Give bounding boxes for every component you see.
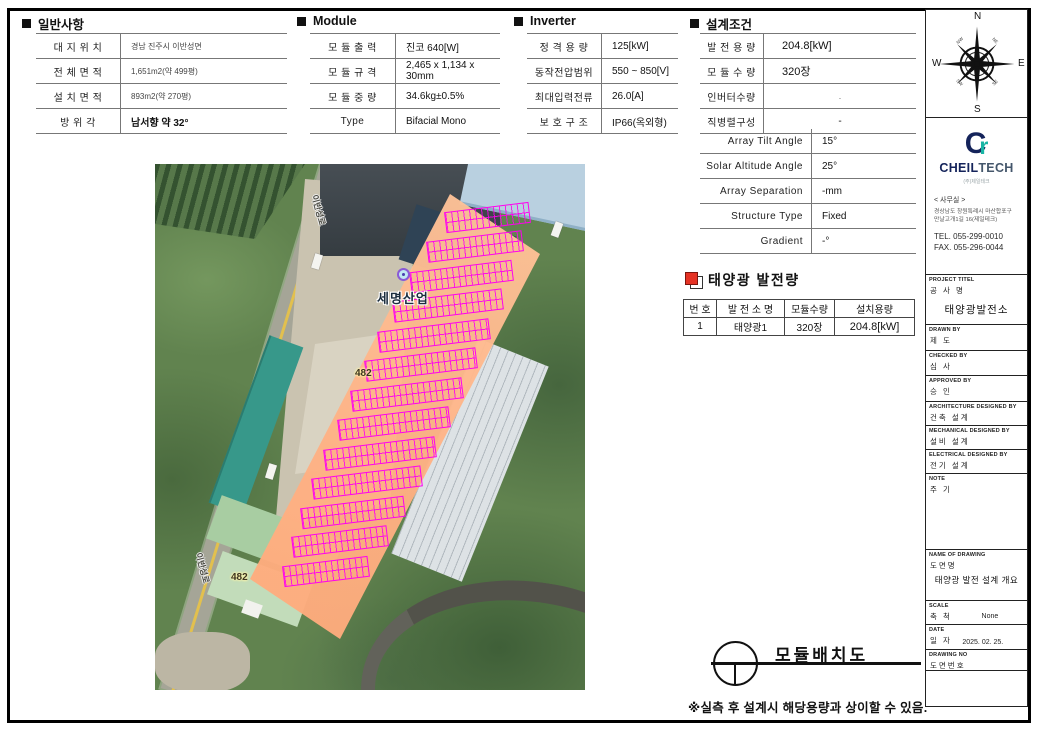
office-address: 경상남도 창원특례시 마산합포구 만날고개1길 16(제일테크) [934, 208, 1027, 224]
project-title-box: PROJECT TITEL 공 사 명 태양광발전소 [925, 274, 1028, 325]
design-section-header: 설계조건 [690, 14, 752, 33]
lot-number-label: 482 [231, 572, 248, 583]
row-value: Bifacial Mono [395, 109, 500, 133]
checked-by-box: CHECKED BY 심 사 [925, 350, 1028, 376]
row-value: 경남 진주시 이반성면 [120, 34, 287, 58]
table-row: 인버터수량 . [700, 84, 916, 109]
block-label-ko: 공 사 명 [930, 285, 965, 296]
block-label-en: CHECKED BY [929, 353, 967, 359]
general-section-header: 일반사항 [22, 14, 84, 33]
poi-label: 세명산업 [377, 288, 429, 307]
col-header: 설치용량 [834, 300, 914, 317]
scale-value: None [982, 613, 999, 620]
row-label: 인버터수량 [700, 84, 763, 108]
office-heading: < 사무실 > [934, 195, 1027, 205]
company-box: C r CHEILTECH (주)제일테크 < 사무실 > 경상남도 창원특례시… [925, 117, 1028, 275]
date-value: 2025. 02. 25. [962, 639, 1003, 646]
row-label: 전 체 면 적 [36, 59, 120, 83]
inverter-title: Inverter [530, 14, 576, 28]
block-label-ko: 건축 설계 [930, 412, 970, 423]
map-poi-marker-icon [397, 268, 410, 281]
row-label: 최대입력전류 [527, 84, 601, 108]
row-label: 모 듈 수 량 [700, 59, 763, 83]
compass-box: N S W E NE NW SE SW [925, 9, 1028, 118]
office-contact: TEL. 055-299-0010 FAX. 055-296-0044 [934, 231, 1027, 253]
table-row: 대 지 위 치 경남 진주시 이반성면 [36, 34, 287, 59]
block-label-en: DRAWN BY [929, 327, 961, 333]
note-box: NOTE 주 기 [925, 473, 1028, 550]
bullet-square-icon [514, 17, 523, 26]
row-value: -° [811, 229, 916, 253]
table-row: 모 듈 출 력 진코 640[W] [310, 34, 500, 59]
row-value: 2,465 x 1,134 x 30mm [395, 59, 500, 83]
approved-by-box: APPROVED BY 승 인 [925, 375, 1028, 402]
compass-e: E [1018, 58, 1025, 69]
table-row: 동작전압범위 550 ~ 850[V] [527, 59, 678, 84]
row-value: 1,651m2(약 499평) [120, 59, 287, 83]
lot-number-label: 482 [355, 368, 372, 379]
company-name: CHEILTECH [926, 159, 1027, 177]
inverter-table: 정 격 용 량 125[kW] 동작전압범위 550 ~ 850[V] 최대입력… [527, 33, 678, 134]
row-value: . [763, 84, 916, 108]
block-label-en: ELECTRICAL DESIGNED BY [929, 452, 1008, 458]
module-table: 모 듈 출 력 진코 640[W] 모 듈 규 격 2,465 x 1,134 … [310, 33, 500, 134]
design-table-ko: 발 전 용 량 204.8[kW] 모 듈 수 량 320장 인버터수량 . 직… [700, 33, 916, 134]
block-label-ko: 심 사 [930, 361, 952, 372]
block-label-ko: 도면명 [930, 560, 957, 571]
module-section-header: Module [297, 14, 357, 28]
table-cell: 204.8[kW] [834, 317, 914, 335]
inverter-section-header: Inverter [514, 14, 576, 28]
drawing-name-value: 태양광 발전 설계 개요 [926, 574, 1027, 586]
row-label: Solar Altitude Angle [700, 154, 811, 178]
compass-w: W [932, 58, 941, 69]
block-label-en: SCALE [929, 603, 949, 609]
design-title: 설계조건 [706, 14, 752, 33]
row-label: 방 위 각 [36, 109, 120, 133]
row-value: 진코 640[W] [395, 34, 500, 58]
bullet-square-icon [22, 19, 31, 28]
block-label-ko: 제 도 [930, 335, 952, 346]
block-label-en: NAME OF DRAWING [929, 552, 985, 558]
row-label: Array Tilt Angle [700, 129, 811, 153]
block-label-ko: 주 기 [930, 484, 952, 495]
compass-s: S [974, 104, 981, 115]
table-row: 모 듈 수 량 320장 [700, 59, 916, 84]
block-label-ko: 일 자 [930, 635, 952, 646]
table-row: Structure Type Fixed [700, 204, 916, 229]
row-label: 보 호 구 조 [527, 109, 601, 133]
row-value: 125[kW] [601, 34, 678, 58]
bullet-square-icon [690, 19, 699, 28]
project-title-value: 태양광발전소 [926, 302, 1027, 317]
table-row: Array Separation -mm [700, 179, 916, 204]
col-header: 모듈수량 [784, 300, 834, 317]
block-label-en: DRAWING NO [929, 652, 967, 658]
row-label: 설 치 면 적 [36, 84, 120, 108]
table-row: Array Tilt Angle 15° [700, 129, 916, 154]
block-label-en: DATE [929, 627, 944, 633]
row-value: 34.6kg±0.5% [395, 84, 500, 108]
generation-table: 번 호 발 전 소 명 모듈수량 설치용량 1 태양광1 320장 204.8[… [683, 299, 915, 336]
table-cell: 320장 [784, 317, 834, 335]
drawing-title: 모듈배치도 [775, 641, 868, 666]
empty-box [925, 670, 1028, 707]
company-subtitle: (주)제일테크 [926, 178, 1027, 185]
row-label: 정 격 용 량 [527, 34, 601, 58]
block-label-en: ARCHITECTURE DESIGNED BY [929, 404, 1017, 410]
company-logo-icon: C r [926, 127, 1027, 157]
scale-box: SCALE 축 척 None [925, 600, 1028, 625]
architecture-designed-box: ARCHITECTURE DESIGNED BY 건축 설계 [925, 401, 1028, 426]
row-value: IP66(옥외형) [601, 109, 678, 133]
row-label: 발 전 용 량 [700, 34, 763, 58]
table-row: 설 치 면 적 893m2(약 270평) [36, 84, 287, 109]
row-label: 모 듈 규 격 [310, 59, 395, 83]
mechanical-designed-box: MECHANICAL DESIGNED BY 설비 설계 [925, 425, 1028, 450]
drawing-sheet: 일반사항 Module Inverter 설계조건 대 지 위 치 경남 진주시… [0, 0, 1038, 732]
drawing-title-symbol-tick [734, 665, 736, 685]
row-label: Type [310, 109, 395, 133]
general-title: 일반사항 [38, 14, 84, 33]
table-cell: 1 [684, 317, 716, 335]
table-row: 발 전 용 량 204.8[kW] [700, 34, 916, 59]
general-table: 대 지 위 치 경남 진주시 이반성면 전 체 면 적 1,651m2(약 49… [36, 33, 287, 134]
title-block: N S W E NE NW SE SW C r CHEILTECH (주)제일테… [925, 10, 1028, 707]
row-value: 26.0[A] [601, 84, 678, 108]
office-tel: TEL. 055-299-0010 [934, 231, 1027, 242]
table-row: Gradient -° [700, 229, 916, 254]
row-label: Structure Type [700, 204, 811, 228]
block-label-en: APPROVED BY [929, 378, 971, 384]
table-cell: 태양광1 [716, 317, 784, 335]
drawing-no-box: DRAWING NO 도면번호 [925, 649, 1028, 671]
table-row: 방 위 각 남서향 약 32° [36, 109, 287, 134]
office-fax: FAX. 055-296-0044 [934, 242, 1027, 253]
drawing-name-box: NAME OF DRAWING 도면명 태양광 발전 설계 개요 [925, 549, 1028, 601]
drawn-by-box: DRAWN BY 제 도 [925, 324, 1028, 351]
row-value: 남서향 약 32° [120, 109, 287, 133]
block-label-en: MECHANICAL DESIGNED BY [929, 428, 1010, 434]
footer-note: ※실측 후 설계시 해당용량과 상이할 수 있음. [688, 697, 927, 716]
row-value: 320장 [763, 59, 916, 83]
table-row: 보 호 구 조 IP66(옥외형) [527, 109, 678, 134]
compass-n: N [974, 11, 981, 22]
row-value: 893m2(약 270평) [120, 84, 287, 108]
row-value: 204.8[kW] [763, 34, 916, 58]
table-row: 모 듈 중 량 34.6kg±0.5% [310, 84, 500, 109]
table-row: 전 체 면 적 1,651m2(약 499평) [36, 59, 287, 84]
row-value: -mm [811, 179, 916, 203]
table-row: 정 격 용 량 125[kW] [527, 34, 678, 59]
table-row: 최대입력전류 26.0[A] [527, 84, 678, 109]
generation-title: 태양광 발전량 [708, 270, 800, 290]
block-label-en: NOTE [929, 476, 945, 482]
design-table-en: Array Tilt Angle 15° Solar Altitude Angl… [700, 129, 916, 254]
row-label: Gradient [700, 229, 811, 253]
block-label-ko: 축 척 [930, 611, 952, 622]
bullet-square-icon [297, 17, 306, 26]
block-label-ko: 설비 설계 [930, 436, 970, 447]
row-value: 550 ~ 850[V] [601, 59, 678, 83]
row-label: 동작전압범위 [527, 59, 601, 83]
table-row: Solar Altitude Angle 25° [700, 154, 916, 179]
row-label: 대 지 위 치 [36, 34, 120, 58]
col-header: 발 전 소 명 [716, 300, 784, 317]
row-value: 25° [811, 154, 916, 178]
row-label: Array Separation [700, 179, 811, 203]
module-title: Module [313, 14, 357, 28]
block-label-en: PROJECT TITEL [929, 277, 974, 283]
col-header: 번 호 [684, 300, 716, 317]
table-row: 모 듈 규 격 2,465 x 1,134 x 30mm [310, 59, 500, 84]
compass-rose-icon: N S W E NE NW SE SW [926, 10, 1027, 117]
electrical-designed-box: ELECTRICAL DESIGNED BY 전기 설계 [925, 449, 1028, 474]
generation-layers-icon [685, 272, 702, 288]
date-box: DATE 일 자 2025. 02. 25. [925, 624, 1028, 650]
table-row: Type Bifacial Mono [310, 109, 500, 134]
satellite-map: 이반성로 이반성로 세명산업 482 482 [155, 164, 585, 690]
row-value: Fixed [811, 204, 916, 228]
row-label: 모 듈 중 량 [310, 84, 395, 108]
row-label: 모 듈 출 력 [310, 34, 395, 58]
block-label-ko: 전기 설계 [930, 460, 970, 471]
block-label-ko: 승 인 [930, 386, 952, 397]
office-info: < 사무실 > 경상남도 창원특례시 마산합포구 만날고개1길 16(제일테크)… [934, 195, 1027, 253]
row-value: 15° [811, 129, 916, 153]
